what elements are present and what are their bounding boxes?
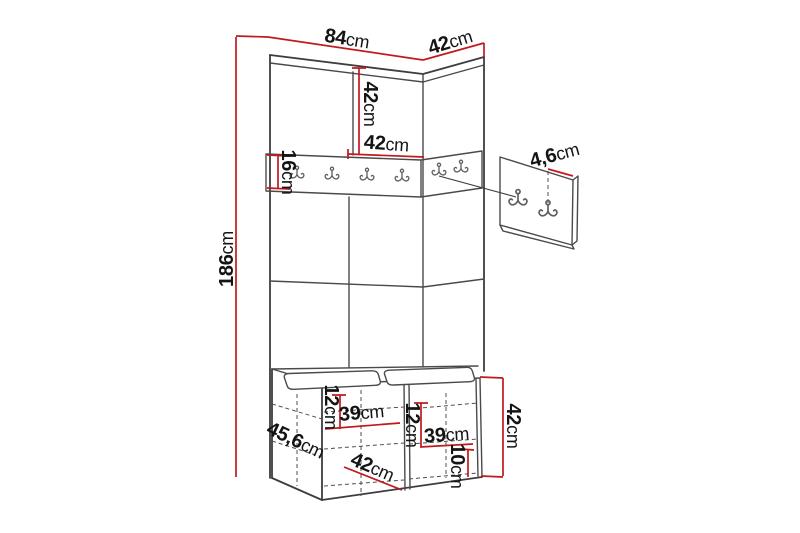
label-bench-right-bottom-height: 10cm bbox=[446, 443, 468, 488]
coat-hook-icon bbox=[325, 167, 339, 179]
label-bench-door-width: 42cm bbox=[347, 449, 397, 487]
coat-hook-icon bbox=[454, 160, 468, 172]
seat-cushion-right bbox=[384, 367, 474, 385]
coat-hook-icon bbox=[395, 169, 409, 181]
label-hook-panel-offset: 4,6cm bbox=[527, 138, 581, 172]
label-upper-door-width: 42cm bbox=[363, 131, 409, 156]
label-bench-left-width: 39cm bbox=[338, 400, 385, 426]
label-upper-door-height: 42cm bbox=[359, 81, 381, 126]
diagram-page: 84cm 42cm 186cm 42cm 42cm 16cm 4,6cm 12c… bbox=[0, 0, 800, 533]
seat-cushions bbox=[284, 367, 474, 389]
unit-top-edge bbox=[270, 55, 484, 74]
label-rail-height: 16cm bbox=[277, 149, 299, 194]
dim-line-bench-height bbox=[480, 377, 503, 477]
coat-hook-icon bbox=[360, 168, 374, 180]
furniture-dimension-diagram: 84cm 42cm 186cm 42cm 42cm 16cm 4,6cm 12c… bbox=[0, 0, 800, 533]
label-top-depth: 42cm bbox=[425, 25, 475, 59]
bench-front-right-edge bbox=[476, 378, 482, 477]
label-top-width: 84cm bbox=[323, 25, 371, 54]
mid-panel-divider-horizontal bbox=[270, 279, 484, 287]
label-bench-right-drawer-height: 12cm bbox=[401, 402, 423, 447]
coat-hook-icon bbox=[432, 163, 446, 175]
label-total-height: 186cm bbox=[216, 231, 238, 287]
wall-hook-panel bbox=[500, 157, 578, 249]
label-bench-height: 42cm bbox=[502, 403, 524, 448]
